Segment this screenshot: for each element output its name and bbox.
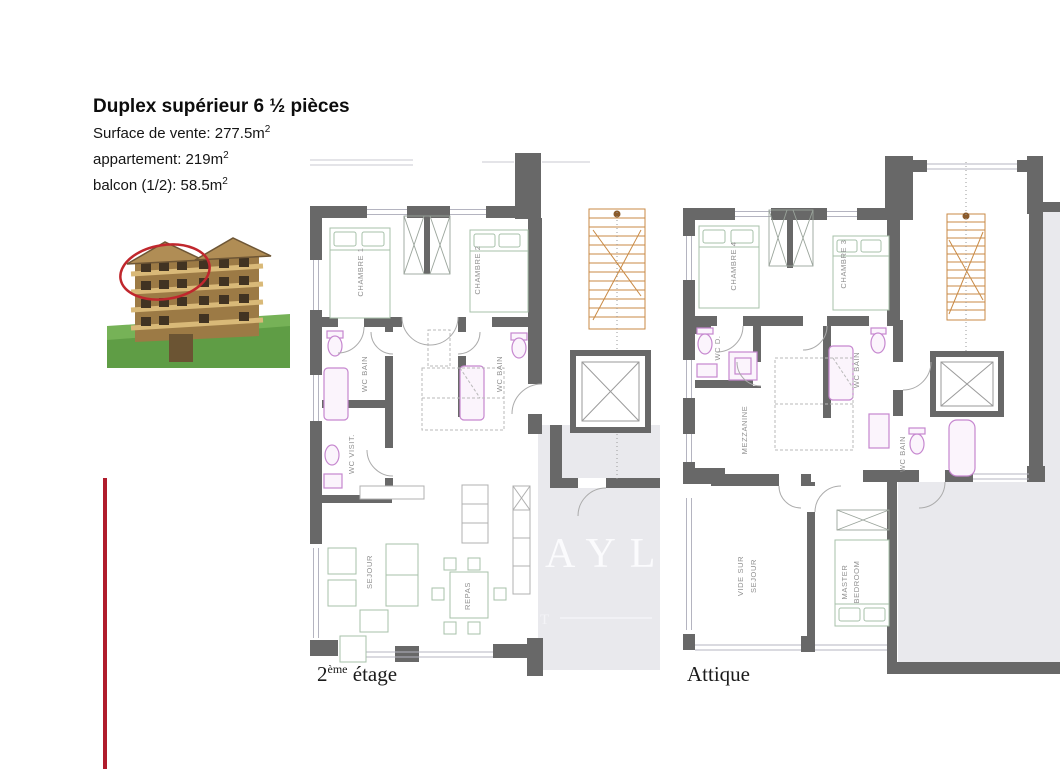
elevator <box>933 354 1001 414</box>
room-label-repas: REPAS <box>463 582 472 610</box>
plan-caption-2eme-etage: 2ème étage <box>317 662 397 687</box>
page-title: Duplex supérieur 6 ½ pièces <box>93 95 350 119</box>
room-label-master: MASTER <box>840 565 849 600</box>
stat-surface-vente: Surface de vente: 277.5m2 <box>93 119 350 145</box>
plan-caption-attique: Attique <box>687 662 750 687</box>
floor-plan-2eme-etage: AYL T <box>310 152 660 682</box>
watermark-text: AYL <box>545 531 660 577</box>
room-label-vide-sejour: SEJOUR <box>749 559 758 593</box>
room-label-chambre3: CHAMBRE 3 <box>839 239 848 288</box>
room-label-wc-bain-mid: WC BAIN <box>852 352 861 388</box>
room-label-mezzanine: MEZZANINE <box>740 406 749 455</box>
room-label-chambre4: CHAMBRE 4 <box>729 241 738 290</box>
brochure-page: Duplex supérieur 6 ½ pièces Surface de v… <box>0 0 1060 769</box>
master-closet <box>837 510 889 530</box>
room-label-wc-bain-1: WC BAIN <box>360 356 369 392</box>
floor-plan-attique: CHAMBRE 4 CHAMBRE 3 WC D. WC BAIN WC BAI… <box>683 148 1060 693</box>
watermark-text-small: T <box>540 612 552 628</box>
staircase <box>947 162 985 352</box>
rail-lines <box>310 160 590 165</box>
room-label-chambre2: CHAMBRE 2 <box>473 245 482 294</box>
room-label-wc-d: WC D. <box>713 335 722 360</box>
red-accent-line <box>103 478 107 769</box>
building-photo <box>107 222 290 368</box>
room-label-chambre1: CHAMBRE 1 <box>356 247 365 296</box>
room-label-sejour: SEJOUR <box>365 555 374 589</box>
elevator <box>573 353 648 430</box>
room-label-wc-bain-2: WC BAIN <box>495 356 504 392</box>
room-label-vide-sur: VIDE SUR <box>736 556 745 596</box>
room-label-bedroom: BEDROOM <box>852 561 861 604</box>
room-label-wc-bain-right: WC BAIN <box>898 436 907 472</box>
room-label-wc-visit: WC VISIT. <box>347 434 356 474</box>
